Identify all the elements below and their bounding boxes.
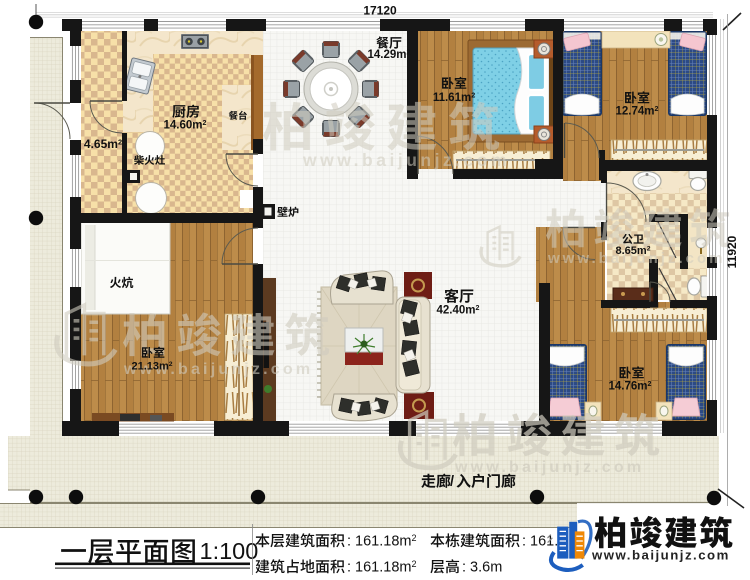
svg-text:11920: 11920: [725, 235, 739, 268]
svg-text:1:100: 1:100: [200, 538, 259, 564]
svg-text:www.baijunjz.com: www.baijunjz.com: [302, 150, 510, 170]
svg-text:12.74m2: 12.74m2: [616, 105, 659, 117]
svg-text:: 161.18m2: : 161.18m2: [347, 559, 417, 576]
svg-text:14.60m2: 14.60m2: [164, 119, 207, 131]
svg-text:www.baijunjz.com: www.baijunjz.com: [591, 548, 730, 563]
svg-text:www.baijunjz.com: www.baijunjz.com: [454, 459, 644, 476]
svg-text:4.65m2: 4.65m2: [84, 137, 122, 151]
svg-text:21.13m2: 21.13m2: [131, 361, 172, 373]
svg-text:: 161.18m2: : 161.18m2: [347, 533, 417, 550]
svg-text:8.65m2: 8.65m2: [616, 245, 651, 257]
svg-text:14.76m2: 14.76m2: [609, 380, 652, 392]
svg-text:11.61m2: 11.61m2: [433, 92, 475, 104]
svg-text:17120: 17120: [363, 4, 397, 18]
svg-text:: 3.6m: : 3.6m: [462, 560, 502, 576]
svg-text:/: /: [450, 474, 454, 490]
svg-text:14.29m2: 14.29m2: [368, 49, 411, 61]
svg-text:42.40m2: 42.40m2: [437, 304, 480, 316]
